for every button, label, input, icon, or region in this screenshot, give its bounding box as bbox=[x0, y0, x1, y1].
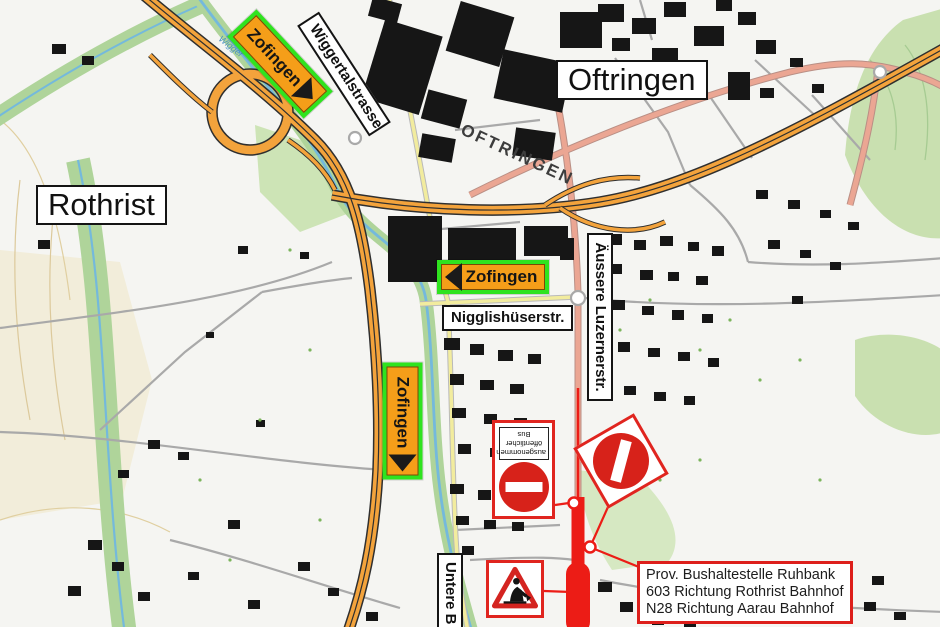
town-label-oftringen: Oftringen bbox=[556, 60, 708, 100]
detour-sign-label: Zofingen bbox=[393, 371, 413, 455]
roadworks-icon bbox=[489, 563, 541, 615]
roadworks-sign bbox=[486, 560, 544, 618]
info-box: Prov. Bushaltestelle Ruhbank 603 Richtun… bbox=[637, 561, 853, 624]
detour-sign-zofingen-3: Zofingen bbox=[383, 363, 423, 480]
arrow-left-icon bbox=[445, 263, 462, 291]
no-entry-sign-with-bus-exception: ausgenommen öffentlicher Bus bbox=[492, 420, 555, 519]
street-label-untere-b: Untere B bbox=[437, 553, 463, 627]
no-entry-icon bbox=[499, 462, 549, 512]
info-box-line: 603 Richtung Rothrist Bahnhof bbox=[646, 584, 844, 601]
map-screenshot: Wigger bbox=[0, 0, 940, 627]
detour-sign-zofingen-2: Zofingen bbox=[437, 260, 549, 294]
info-box-line: Prov. Bushaltestelle Ruhbank bbox=[646, 567, 844, 584]
detour-sign-label: Zofingen bbox=[462, 267, 541, 287]
bus-exception-line: ausgenommen bbox=[502, 448, 546, 457]
bus-exception-line: Bus bbox=[502, 430, 546, 439]
town-label-rothrist: Rothrist bbox=[36, 185, 167, 225]
bus-exception-plaque: ausgenommen öffentlicher Bus bbox=[499, 427, 549, 460]
bus-exception-line: öffentlicher bbox=[502, 439, 546, 448]
info-box-line: N28 Richtung Aarau Bahnhof bbox=[646, 601, 844, 618]
arrow-down-icon bbox=[389, 455, 417, 472]
street-label-nigglishueserstrasse: Nigglishüserstr. bbox=[442, 305, 573, 331]
street-label-aeussere-luzernerstrasse: Äussere Luzernerstr. bbox=[587, 233, 613, 401]
